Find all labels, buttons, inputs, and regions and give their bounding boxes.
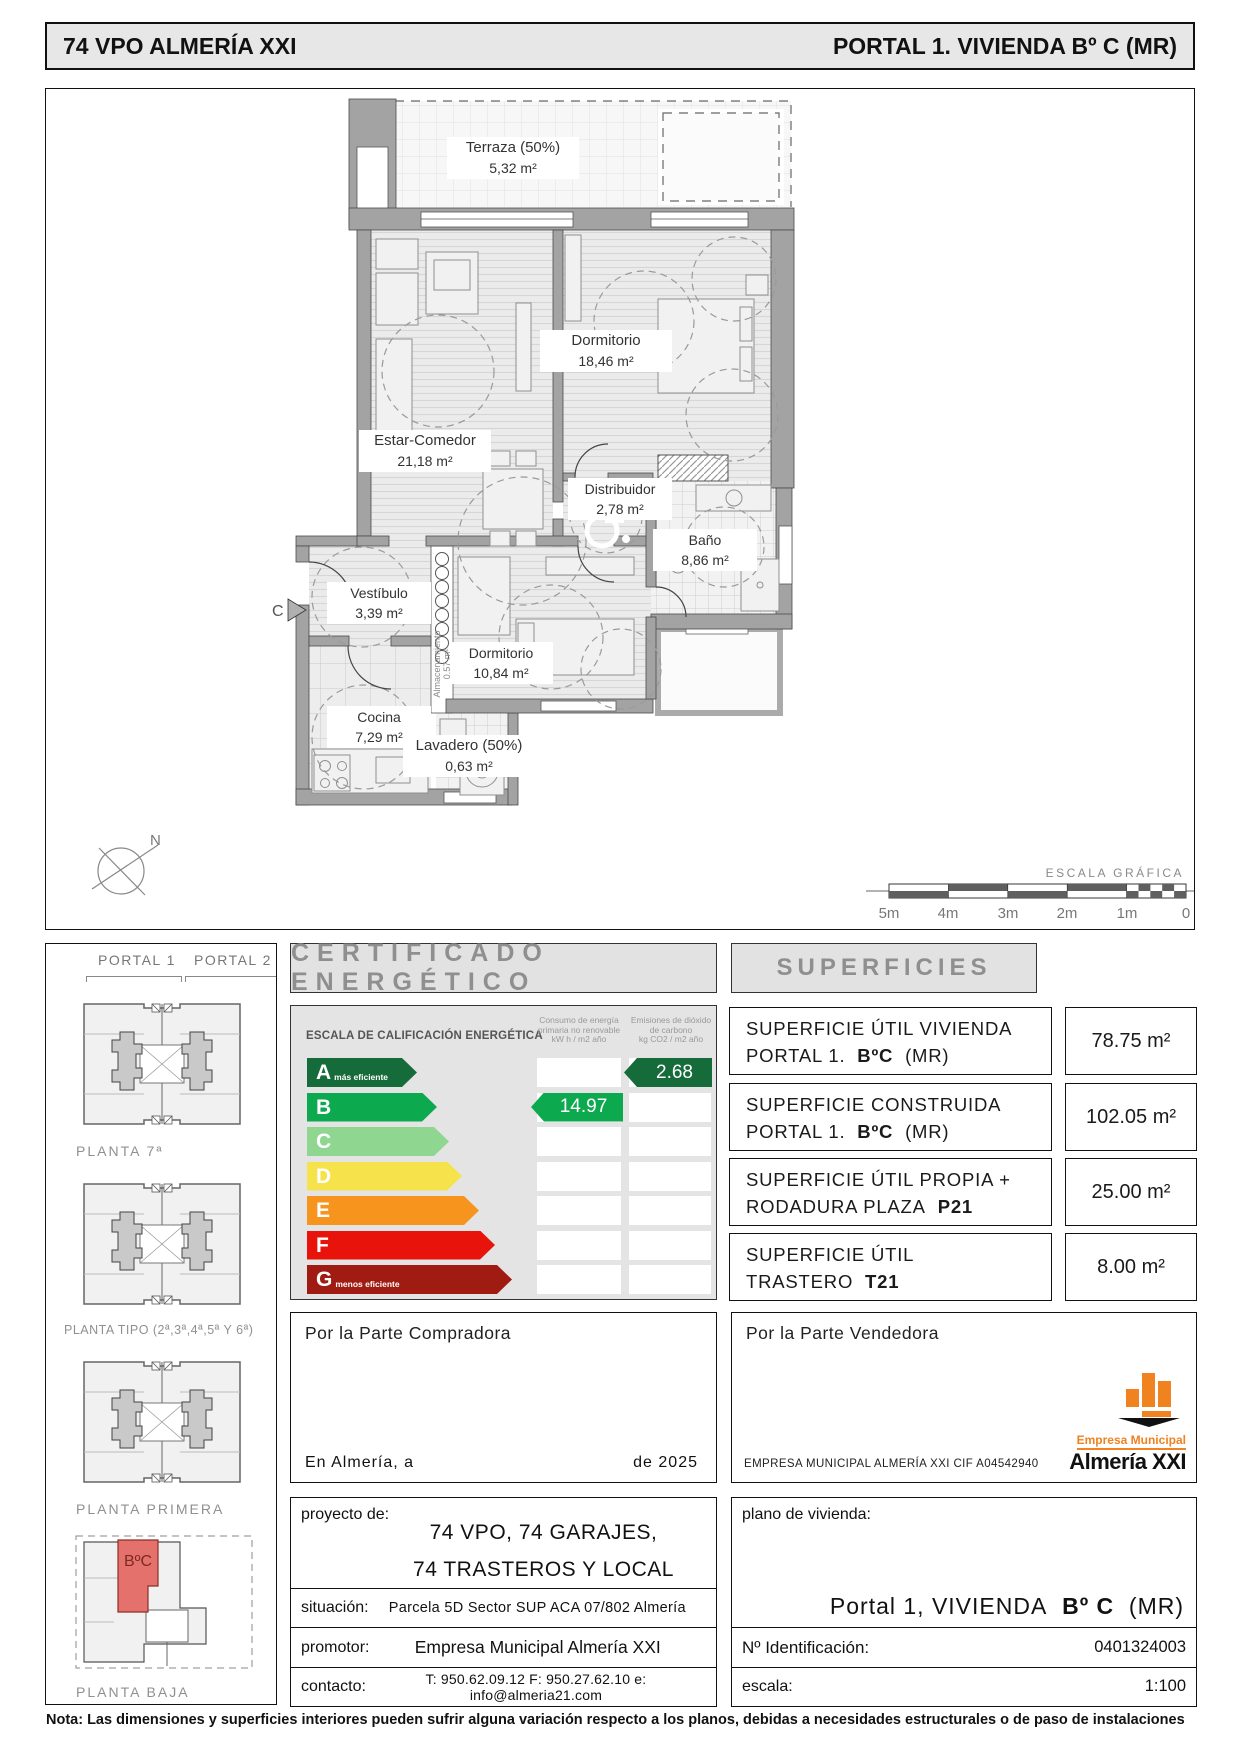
seller-company-line: EMPRESA MUNICIPAL ALMERÍA XXI CIF A04542… bbox=[744, 1458, 1039, 1470]
project-title: 74 VPO ALMERÍA XXI bbox=[63, 33, 296, 60]
consumption-column-header: Consumo de energía primaria no renovable… bbox=[535, 1016, 623, 1045]
room-label: Lavadero (50%)0,63 m² bbox=[403, 735, 535, 777]
contacto-value: T: 950.62.09.12 F: 950.27.62.10 e: info@… bbox=[366, 1671, 706, 1703]
key-plans-panel: PORTAL 1 PORTAL 2 PLANTA 7ª PLANTA TIPO … bbox=[45, 943, 277, 1705]
key-plan-planta-baja: BºC bbox=[62, 1526, 262, 1684]
situacion-value: Parcela 5D Sector SUP ACA 07/802 Almería bbox=[369, 1600, 706, 1616]
portal-2-label: PORTAL 2 bbox=[194, 952, 272, 968]
superficie-row-label: SUPERFICIE ÚTIL PROPIA + RODADURA PLAZA … bbox=[729, 1158, 1052, 1226]
proyecto-label: proyecto de: bbox=[301, 1506, 389, 1524]
superficie-row-label: SUPERFICIE ÚTIL VIVIENDA PORTAL 1. BºC (… bbox=[729, 1007, 1052, 1075]
superficie-row-label: SUPERFICIE ÚTIL TRASTERO T21 bbox=[729, 1233, 1052, 1301]
svg-text:2m: 2m bbox=[1057, 905, 1078, 922]
room-label: Vestíbulo3,39 m² bbox=[327, 582, 431, 624]
portal-2-bracket bbox=[185, 976, 277, 982]
plano-value: Portal 1, VIVIENDA Bº C (MR) bbox=[830, 1593, 1184, 1620]
svg-text:5m: 5m bbox=[879, 905, 900, 922]
rating-row-b: B 14.97 bbox=[291, 1093, 716, 1122]
room-label: Dormitorio10,84 m² bbox=[449, 642, 553, 684]
superficie-row-label: SUPERFICIE CONSTRUIDA PORTAL 1. BºC (MR) bbox=[729, 1083, 1052, 1151]
superficie-row-value: 102.05 m² bbox=[1065, 1083, 1197, 1151]
plano-label: plano de vivienda: bbox=[742, 1506, 871, 1524]
logo-text-bottom: Almería XXI bbox=[1069, 1449, 1186, 1474]
svg-text:1m: 1m bbox=[1117, 905, 1138, 922]
north-compass-icon: N bbox=[92, 832, 161, 895]
rating-arrow-g: G menos eficiente bbox=[307, 1265, 512, 1294]
rating-row-e: E bbox=[291, 1196, 716, 1225]
superficie-row-value: 8.00 m² bbox=[1065, 1233, 1197, 1301]
almeria21-logo: Empresa Municipal Almería XXI bbox=[1058, 1373, 1186, 1474]
situacion-label: situación: bbox=[301, 1599, 369, 1617]
rating-row-a: A más eficiente 2.68 bbox=[291, 1058, 716, 1087]
portal-1-label: PORTAL 1 bbox=[98, 952, 176, 968]
buyer-signature-box: Por la Parte Compradora En Almería, a de… bbox=[290, 1312, 717, 1483]
floor-plan-panel: C N ESCALA GRÁFICA 5m bbox=[45, 88, 1195, 930]
svg-text:3m: 3m bbox=[998, 905, 1019, 922]
svg-text:0: 0 bbox=[1182, 905, 1190, 922]
room-label: Baño8,86 m² bbox=[653, 529, 757, 571]
escala-cell: escala: 1:100 bbox=[731, 1667, 1197, 1707]
portal-labels: PORTAL 1 PORTAL 2 bbox=[46, 952, 276, 986]
floor-label-planta-primera: PLANTA PRIMERA bbox=[76, 1501, 224, 1517]
room-label: Almacenamiento 0.57 m² bbox=[432, 629, 452, 699]
portal-1-bracket bbox=[86, 976, 182, 982]
emissions-value-badge: 2.68 bbox=[624, 1058, 712, 1087]
emissions-column-header: Emisiones de dióxido de carbono kg CO2 /… bbox=[627, 1016, 715, 1045]
svg-text:N: N bbox=[150, 832, 161, 849]
rating-arrow-a: A más eficiente bbox=[307, 1058, 417, 1087]
signature-date-right: de 2025 bbox=[633, 1454, 698, 1472]
rating-row-g: G menos eficiente bbox=[291, 1265, 716, 1294]
situacion-cell: situación: Parcela 5D Sector SUP ACA 07/… bbox=[290, 1588, 717, 1629]
key-plan-planta-tipo bbox=[62, 1168, 262, 1320]
promotor-label: promotor: bbox=[301, 1639, 369, 1657]
contacto-cell: contacto: T: 950.62.09.12 F: 950.27.62.1… bbox=[290, 1667, 717, 1707]
floor-label-planta-7: PLANTA 7ª bbox=[76, 1143, 164, 1159]
rating-row-f: F bbox=[291, 1231, 716, 1260]
room-label: Estar-Comedor21,18 m² bbox=[359, 430, 491, 472]
rating-row-c: C bbox=[291, 1127, 716, 1156]
title-bar: 74 VPO ALMERÍA XXI PORTAL 1. VIVIENDA Bº… bbox=[45, 22, 1195, 70]
key-plan-planta-7 bbox=[62, 988, 262, 1140]
almeria21-logo-icon bbox=[1118, 1373, 1180, 1429]
rating-arrow-c: C bbox=[307, 1127, 449, 1156]
graphic-scale-title: ESCALA GRÁFICA bbox=[1046, 865, 1184, 880]
identificacion-value: 0401324003 bbox=[1094, 1638, 1186, 1657]
seller-signature-box: Por la Parte Vendedora EMPRESA MUNICIPAL… bbox=[731, 1312, 1197, 1483]
graphic-scale: ESCALA GRÁFICA 5m 4m 3m 2m 1m 0 bbox=[866, 865, 1195, 922]
promotor-value: Empresa Municipal Almería XXI bbox=[369, 1637, 706, 1658]
highlighted-unit-label: BºC bbox=[124, 1553, 152, 1570]
dwelling-title: PORTAL 1. VIVIENDA Bº C (MR) bbox=[833, 33, 1177, 60]
floor-label-planta-baja: PLANTA BAJA bbox=[76, 1684, 190, 1700]
rating-rows: A más eficiente 2.68 B 14.97 C D bbox=[291, 1058, 716, 1294]
svg-text:C: C bbox=[272, 603, 284, 620]
floor-label-planta-tipo: PLANTA TIPO (2ª,3ª,4ª,5ª Y 6ª) bbox=[64, 1323, 253, 1337]
energy-certificate-panel: ESCALA DE CALIFICACIÓN ENERGÉTICA Consum… bbox=[290, 1005, 717, 1300]
proyecto-value: 74 VPO, 74 GARAJES, 74 TRASTEROS Y LOCAL bbox=[381, 1514, 706, 1588]
proyecto-cell: proyecto de: 74 VPO, 74 GARAJES, 74 TRAS… bbox=[290, 1497, 717, 1589]
escala-value: 1:100 bbox=[1145, 1677, 1186, 1696]
plano-cell: plano de vivienda: Portal 1, VIVIENDA Bº… bbox=[731, 1497, 1197, 1629]
identificacion-label: Nº Identificación: bbox=[742, 1638, 869, 1658]
superficies-section-title: SUPERFICIES bbox=[731, 943, 1037, 993]
key-plan-planta-primera bbox=[62, 1346, 262, 1498]
rating-arrow-e: E bbox=[307, 1196, 479, 1225]
certificate-header-row: ESCALA DE CALIFICACIÓN ENERGÉTICA Consum… bbox=[291, 1014, 716, 1058]
identificacion-cell: Nº Identificación: 0401324003 bbox=[731, 1627, 1197, 1668]
seller-title: Por la Parte Vendedora bbox=[746, 1323, 939, 1344]
footer-note: Nota: Las dimensiones y superficies inte… bbox=[46, 1712, 1196, 1728]
contacto-label: contacto: bbox=[301, 1678, 366, 1696]
rating-scale-title: ESCALA DE CALIFICACIÓN ENERGÉTICA bbox=[306, 1030, 543, 1042]
rating-arrow-b: B bbox=[307, 1093, 437, 1122]
svg-text:4m: 4m bbox=[938, 905, 959, 922]
consumption-value-badge: 14.97 bbox=[531, 1093, 623, 1122]
signature-date-left: En Almería, a bbox=[305, 1454, 414, 1472]
rating-row-d: D bbox=[291, 1162, 716, 1191]
buyer-title: Por la Parte Compradora bbox=[305, 1323, 511, 1344]
escala-label: escala: bbox=[742, 1678, 793, 1696]
certificate-section-title: CERTIFICADO ENERGÉTICO bbox=[290, 943, 717, 993]
rating-arrow-d: D bbox=[307, 1162, 462, 1191]
superficie-row-value: 25.00 m² bbox=[1065, 1158, 1197, 1226]
room-label: Distribuidor2,78 m² bbox=[568, 478, 672, 520]
room-label: Terraza (50%)5,32 m² bbox=[447, 137, 579, 179]
room-label: Dormitorio18,46 m² bbox=[540, 330, 672, 372]
rating-arrow-f: F bbox=[307, 1231, 495, 1260]
superficie-row-value: 78.75 m² bbox=[1065, 1007, 1197, 1075]
logo-text-top: Empresa Municipal bbox=[1077, 1433, 1186, 1450]
promotor-cell: promotor: Empresa Municipal Almería XXI bbox=[290, 1627, 717, 1668]
